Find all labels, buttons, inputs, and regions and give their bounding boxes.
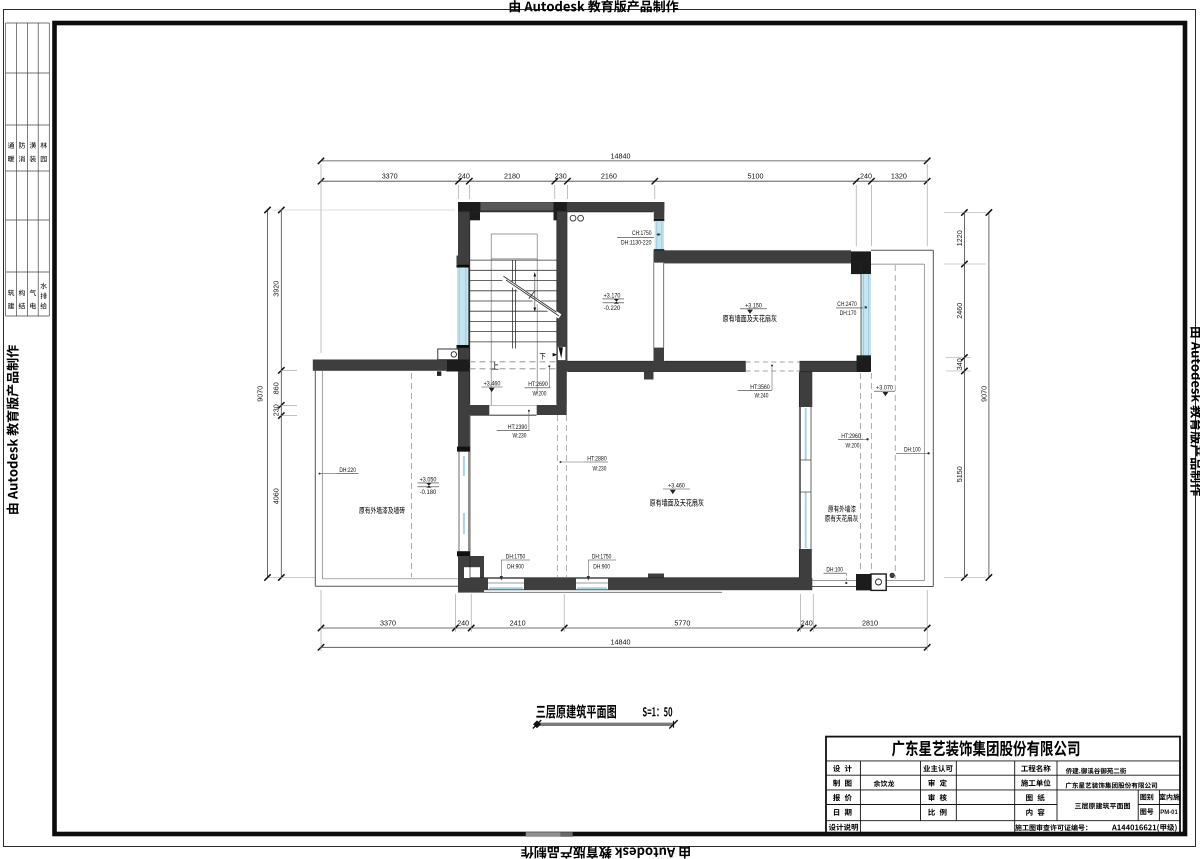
svg-text:240: 240 [801,618,813,627]
svg-text:+3.170: +3.170 [604,293,621,300]
svg-text:2160: 2160 [601,172,617,181]
svg-text:2180: 2180 [504,172,520,181]
svg-text:DH:170: DH:170 [840,310,857,317]
svg-text:240: 240 [458,172,470,181]
svg-text:DH:1750: DH:1750 [592,553,612,560]
svg-text:240: 240 [860,172,872,181]
svg-text:W:240: W:240 [755,392,769,399]
svg-text:9070: 9070 [256,386,265,402]
svg-text:DH:100: DH:100 [904,446,921,453]
svg-text:1220: 1220 [955,230,964,246]
svg-text:4060: 4060 [272,488,281,504]
svg-text:+3.050: +3.050 [420,477,437,484]
svg-text:3370: 3370 [380,618,396,627]
svg-text:HT:2960: HT:2960 [841,433,861,440]
svg-text:5100: 5100 [748,172,764,181]
svg-text:14840: 14840 [611,638,631,647]
svg-text:230: 230 [555,172,567,181]
svg-text:HT:2690: HT:2690 [528,381,548,388]
svg-text:CH:2470: CH:2470 [837,301,857,308]
svg-text:+3.070: +3.070 [876,384,893,391]
svg-text:DH:100: DH:100 [826,567,843,574]
svg-text:CH:1750: CH:1750 [632,230,652,237]
svg-text:2460: 2460 [955,303,964,319]
svg-text:9070: 9070 [980,386,989,402]
svg-text:W:230: W:230 [593,465,607,472]
svg-text:HT:2880: HT:2880 [587,456,607,463]
svg-text:230: 230 [272,404,281,416]
svg-text:W:200: W:200 [533,390,547,397]
svg-text:HT:2390: HT:2390 [508,424,528,431]
svg-text:2410: 2410 [510,618,526,627]
svg-text:-0.180: -0.180 [420,489,437,496]
svg-text:+3.460: +3.460 [484,381,501,388]
svg-text:3370: 3370 [382,172,398,181]
svg-text:3920: 3920 [272,281,281,297]
svg-text:W:200: W:200 [846,442,860,449]
svg-text:DH:1130-220: DH:1130-220 [621,240,652,247]
svg-text:DH:1750: DH:1750 [506,553,526,560]
svg-text:2810: 2810 [862,618,878,627]
svg-text:5150: 5150 [955,466,964,482]
svg-text:14840: 14840 [611,151,631,160]
svg-text:DH:900: DH:900 [593,563,610,570]
svg-text:860: 860 [272,382,281,394]
svg-text:PM-01: PM-01 [1160,809,1178,816]
svg-text:240: 240 [457,618,469,627]
svg-text:340: 340 [955,358,964,370]
svg-text:-0.220: -0.220 [604,305,621,312]
svg-text:DH:900: DH:900 [507,563,524,570]
svg-text:+3.460: +3.460 [668,482,685,489]
svg-text:+3.150: +3.150 [745,302,762,309]
svg-text:1320: 1320 [891,172,907,181]
svg-text:DH:220: DH:220 [339,467,356,474]
svg-text:W:230: W:230 [513,432,527,439]
svg-text:5770: 5770 [674,618,690,627]
svg-text:HT:3560: HT:3560 [750,384,770,391]
